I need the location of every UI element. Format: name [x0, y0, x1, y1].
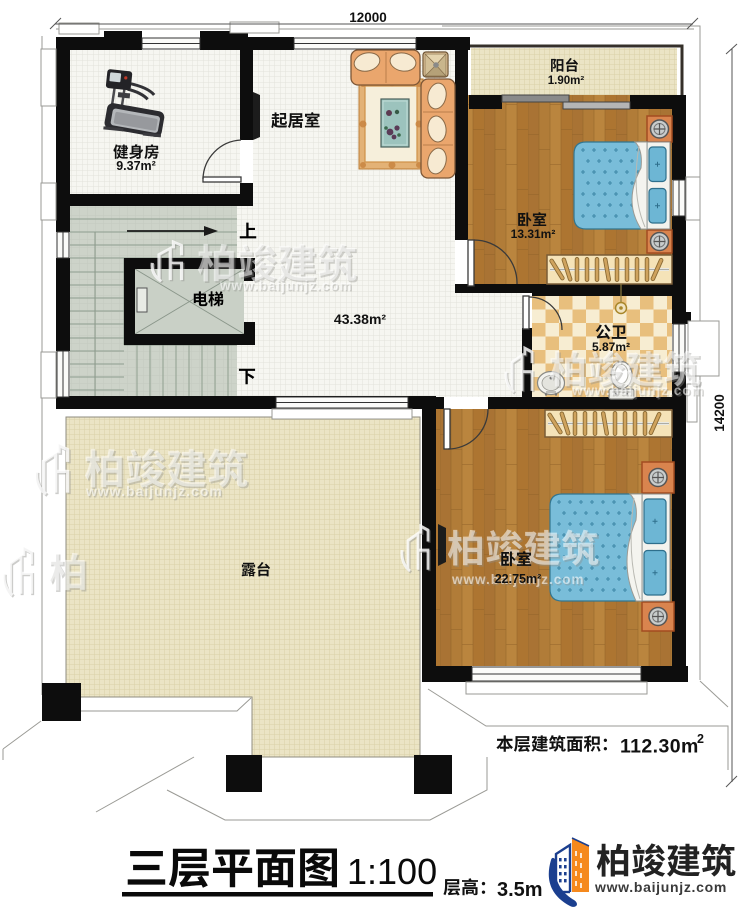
svg-text:1:100: 1:100 — [347, 851, 437, 892]
svg-text:www.baijunjz.com: www.baijunjz.com — [85, 483, 223, 499]
svg-text:12000: 12000 — [349, 10, 387, 25]
svg-text:13.31m²: 13.31m² — [511, 227, 556, 241]
svg-text:22.75m²: 22.75m² — [495, 572, 542, 586]
svg-text:14200: 14200 — [712, 394, 727, 432]
svg-text:9.37m²: 9.37m² — [116, 159, 156, 173]
svg-text:www.baijunjz.com: www.baijunjz.com — [594, 879, 727, 895]
svg-text:www.baijunjz.com: www.baijunjz.com — [219, 278, 353, 293]
svg-text:112.30m: 112.30m — [620, 736, 699, 758]
svg-text:5.87m²: 5.87m² — [592, 340, 630, 354]
svg-text:1.90m²: 1.90m² — [548, 75, 585, 87]
svg-text:43.38m²: 43.38m² — [334, 311, 386, 327]
svg-text:3.5m: 3.5m — [497, 879, 543, 901]
svg-text:2: 2 — [697, 732, 704, 746]
svg-text:www.baijunjz.com: www.baijunjz.com — [571, 383, 705, 398]
